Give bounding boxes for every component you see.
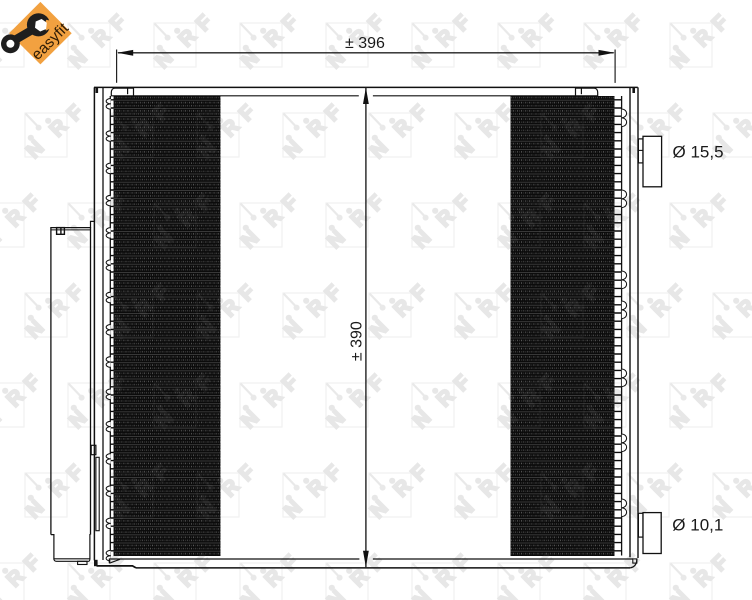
svg-text:± 390: ± 390 (349, 321, 366, 361)
svg-text:Ø 10,1: Ø 10,1 (672, 516, 723, 535)
svg-text:Ø 15,5: Ø 15,5 (673, 143, 724, 162)
svg-text:± 396: ± 396 (345, 35, 385, 52)
